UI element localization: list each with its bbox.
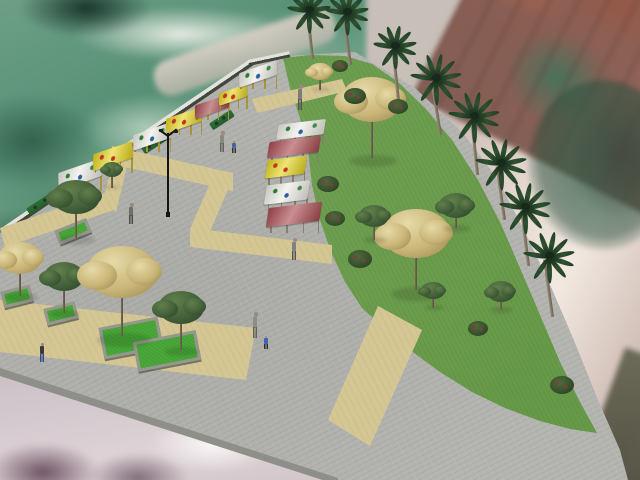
palm-crown-center <box>545 252 554 259</box>
tree-canopy-lobe <box>152 300 177 318</box>
tree-canopy-lobe <box>376 210 391 221</box>
lamp-head <box>174 130 178 133</box>
tent-white-middle <box>265 183 309 202</box>
tree-canopy-lobe <box>126 258 162 285</box>
bush <box>344 88 366 105</box>
person <box>39 343 46 362</box>
person <box>291 238 298 260</box>
tree-canopy-lobe <box>484 287 499 298</box>
lamp-post-pole <box>167 133 169 216</box>
tree-canopy-lobe <box>113 165 123 173</box>
tree-canopy-lobe <box>435 200 454 214</box>
bush <box>388 99 408 114</box>
person <box>263 336 270 349</box>
palm-crown-center <box>343 8 352 15</box>
bush <box>317 176 339 193</box>
tent-red-middle <box>268 139 320 155</box>
palm-crown-center <box>521 203 530 210</box>
tree-trunk <box>75 210 77 238</box>
tent-leg <box>201 122 203 135</box>
tree-canopy-green <box>421 282 445 299</box>
tree-trunk <box>121 292 123 336</box>
person <box>252 312 259 338</box>
person <box>297 84 304 110</box>
tree-canopy-lobe <box>355 211 372 223</box>
tent-leg <box>100 176 102 191</box>
tree-canopy-lobe <box>502 286 516 297</box>
bush <box>468 321 488 336</box>
tent-leg <box>228 108 230 121</box>
tree-canopy-lobe <box>46 189 72 208</box>
plaza-render-image <box>0 0 640 480</box>
person-legs <box>253 327 256 338</box>
tree-canopy-lobe <box>458 199 475 212</box>
tree-canopy-yellow <box>382 209 450 258</box>
tree-shadow <box>59 235 95 245</box>
photo-dark-roof <box>572 96 640 216</box>
tree-canopy-green <box>359 205 389 227</box>
tent-canopy <box>267 136 321 159</box>
bush <box>332 60 348 72</box>
person-legs <box>292 251 295 260</box>
tent-red-middle <box>267 205 321 224</box>
person-legs <box>220 143 223 152</box>
tree-canopy-green <box>102 162 122 177</box>
tree-canopy-green <box>487 281 515 301</box>
tree-canopy-yellow <box>308 63 332 80</box>
tent-yellow-middle <box>266 158 306 176</box>
palm-tree <box>425 71 455 135</box>
tree-trunk <box>63 287 65 313</box>
tree-canopy-lobe <box>22 249 44 266</box>
tent-leg <box>131 158 133 173</box>
person-torso <box>298 89 302 100</box>
person <box>231 141 238 153</box>
person-torso <box>253 317 257 328</box>
palm-tree <box>462 109 492 175</box>
tent-white-middle <box>277 122 325 137</box>
palm-tree <box>335 5 365 65</box>
person-head <box>254 312 259 317</box>
tree-canopy-lobe <box>77 261 117 290</box>
person-head <box>299 84 304 89</box>
tree-canopy-green <box>439 193 473 218</box>
tree-canopy-green <box>52 180 100 215</box>
tree-canopy-lobe <box>434 286 446 295</box>
tent-yellow-promenade <box>218 89 248 101</box>
lamp-post-base <box>166 212 170 217</box>
person-legs <box>264 344 267 349</box>
tent-leg <box>246 96 248 108</box>
tree-canopy-lobe <box>0 251 17 269</box>
person <box>219 131 226 152</box>
palm-tree <box>297 3 327 59</box>
tree-canopy-green <box>158 291 204 324</box>
tree-canopy-yellow <box>0 242 42 274</box>
tree-canopy-lobe <box>39 270 61 286</box>
tree-trunk <box>180 320 182 350</box>
tent-canopy <box>266 201 323 227</box>
tent-canopy <box>264 180 311 205</box>
tree-canopy-lobe <box>418 287 431 297</box>
tree-canopy-lobe <box>305 68 318 78</box>
tent-leg <box>170 138 172 152</box>
person-legs <box>232 148 235 153</box>
tent-leg <box>276 76 278 89</box>
person-legs <box>129 215 132 224</box>
tree-trunk <box>371 116 373 158</box>
palm-tree <box>537 249 567 317</box>
tree-canopy-lobe <box>321 67 333 76</box>
palm-tree <box>383 39 413 101</box>
person-legs <box>298 99 301 110</box>
bush <box>325 211 345 226</box>
palm-crown-center <box>497 159 506 166</box>
person-legs <box>40 354 43 362</box>
lamp-head <box>159 129 163 132</box>
person <box>128 203 135 224</box>
tree-canopy-lobe <box>374 223 411 250</box>
tent-canopy <box>265 155 308 178</box>
tent-white-promenade <box>238 67 278 81</box>
tree-canopy-lobe <box>100 166 111 174</box>
tree-trunk <box>111 175 113 188</box>
